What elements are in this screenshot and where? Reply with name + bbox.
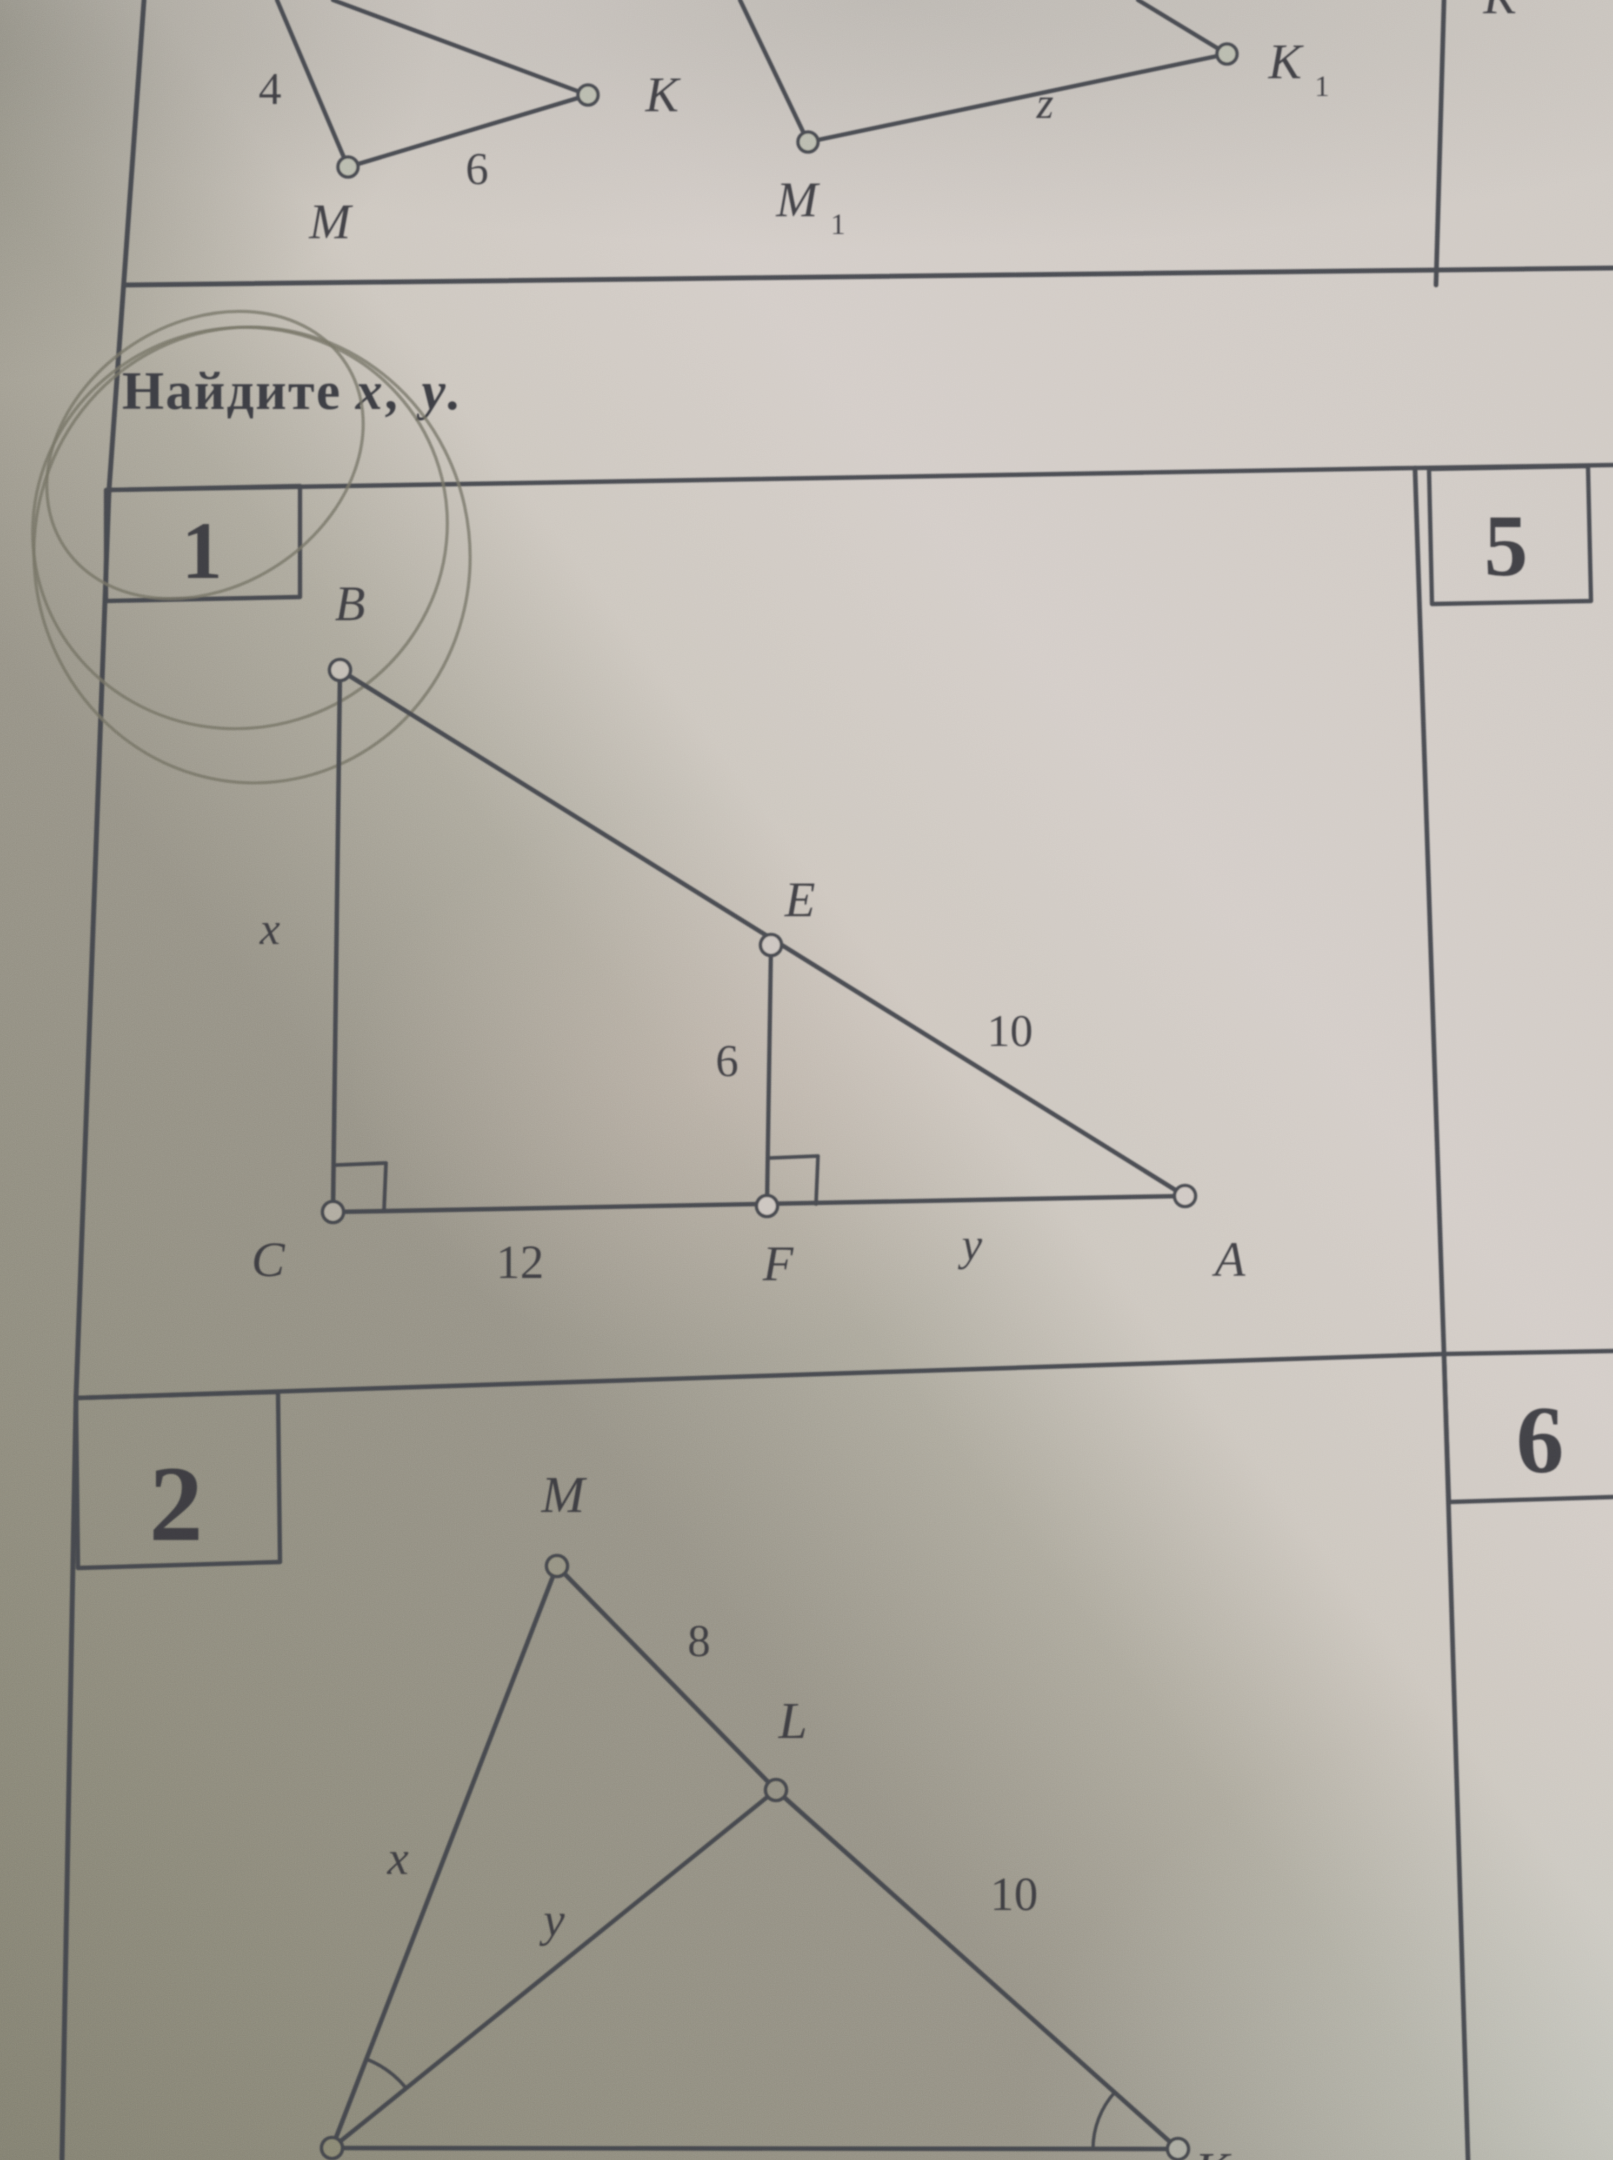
- printed-ink-layer: 1 5 2 6 4 6: [0, 0, 1613, 2160]
- photo-grain-overlay: [0, 0, 1613, 2160]
- textbook-page-photo: Найдитеx, y. 1: [0, 0, 1613, 2160]
